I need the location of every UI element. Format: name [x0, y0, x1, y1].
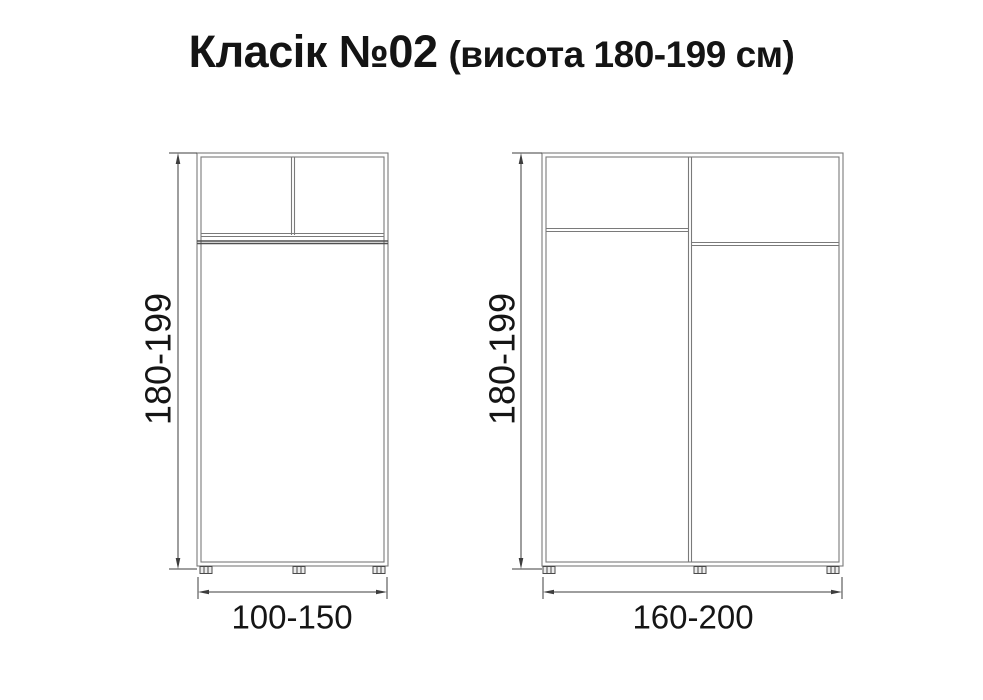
dimension-arrow-up-icon	[519, 153, 524, 164]
dimension-arrow-up-icon	[176, 153, 181, 164]
wardrobe-dimensions-page: Класік №02(висота 180-199 см)	[0, 0, 983, 700]
right-compartment-shelf	[692, 243, 839, 246]
width-dimension: 100-150	[198, 577, 387, 636]
dimension-arrow-right-icon	[376, 590, 387, 595]
height-dimension-label: 180-199	[138, 293, 179, 425]
dimension-arrow-down-icon	[519, 558, 524, 569]
cabinet-feet	[200, 567, 385, 574]
mezzanine-bottom-shelf	[201, 234, 384, 237]
left-compartment-shelf	[546, 229, 688, 232]
width-dimension-label: 160-200	[632, 599, 753, 636]
height-dimension: 180-199	[482, 153, 543, 569]
dimension-arrow-left-icon	[543, 590, 554, 595]
diagram-wardrobe-small: 180-199 100-150	[138, 153, 389, 636]
dimension-arrow-down-icon	[176, 558, 181, 569]
cabinet-outline	[197, 153, 388, 566]
cabinet-outline	[542, 153, 843, 566]
cabinet-feet	[543, 567, 839, 574]
mezzanine-divider	[292, 157, 295, 235]
center-divider	[689, 157, 692, 562]
diagram-wardrobe-large: 180-199 160-200	[482, 153, 844, 636]
dimension-arrow-right-icon	[831, 590, 842, 595]
width-dimension-label: 100-150	[231, 599, 352, 636]
wardrobe-diagrams-canvas: 180-199 100-150	[0, 0, 983, 700]
height-dimension-label: 180-199	[482, 293, 523, 425]
dimension-arrow-left-icon	[198, 590, 209, 595]
height-dimension: 180-199	[138, 153, 198, 569]
lower-cabinet-top-panel	[197, 241, 388, 244]
width-dimension: 160-200	[543, 577, 842, 636]
